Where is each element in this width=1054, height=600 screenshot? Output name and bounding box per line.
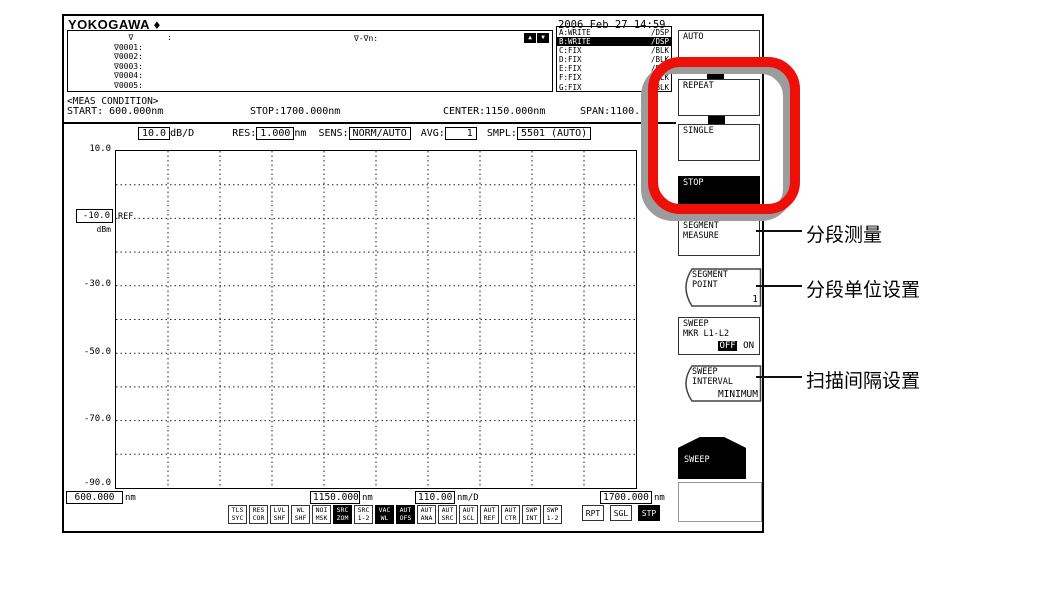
status-indicator-aut-ref: AUTREF [480, 505, 499, 524]
status-button-rpt: RPT [582, 505, 604, 521]
y-tick: -50.0 [69, 347, 111, 357]
status-indicator-src-zom: SRCZOM [333, 505, 352, 524]
status-button-row: RPTSGLSTP [582, 505, 660, 521]
grid [116, 151, 636, 488]
sweep-menu-header: SWEEP [678, 437, 746, 479]
res-value: 1.000 [256, 127, 294, 140]
meas-field: CENTER:1150.000nm [443, 106, 545, 117]
scroll-down-icon[interactable]: ▼ [537, 33, 549, 43]
trace-row: B:WRITE/DSP [557, 37, 671, 46]
smpl-value: 5501 (AUTO) [517, 127, 591, 140]
softkey-segment-point[interactable]: SEGMENTPOINT 1 [678, 268, 762, 307]
meas-fields: START: 600.000nmSTOP:1700.000nmCENTER:11… [64, 106, 676, 120]
status-indicator-lvl-shf: LVLSHF [270, 505, 289, 524]
callout-line [756, 285, 802, 287]
annotation-sweep-interval: 扫描间隔设置 [806, 366, 920, 393]
avg-value: 1 [445, 127, 477, 140]
status-indicator-wl-shf: WLSHF [291, 505, 310, 524]
status-indicator-aut-ana: AUTANA [417, 505, 436, 524]
status-button-stp: STP [638, 505, 660, 521]
softkey-sweep-marker[interactable]: SWEEPMKR L1-L2 OFF ON [678, 317, 760, 355]
marker-row: ∇0003: [114, 62, 172, 72]
marker-rows: ∇ :∇0001:∇0002:∇0003:∇0004:∇0005: [114, 33, 172, 91]
y-axis-unit: dBm [69, 225, 111, 234]
smpl-label: SMPL: [487, 128, 517, 139]
x-start: 600.000nm [66, 491, 136, 504]
status-indicator-aut-ctr: AUTCTR [501, 505, 520, 524]
res-label: RES: [232, 128, 256, 139]
status-indicator-swp-int: SWPINT [522, 505, 541, 524]
sens-label: SENS: [318, 128, 348, 139]
highlight-ring [648, 57, 800, 214]
settings-row: 10.0dB/D RES: 1.000nm SENS:NORM/AUTO AVG… [138, 127, 591, 140]
y-tick: 10.0 [69, 144, 111, 154]
marker-panel: ∇ :∇0001:∇0002:∇0003:∇0004:∇0005: ∇-∇n: … [67, 30, 553, 92]
meas-field: STOP:1700.000nm [250, 106, 340, 117]
y-ref-value: -10.0 [76, 209, 113, 223]
marker-row: ∇ : [114, 33, 172, 43]
y-tick: -30.0 [69, 279, 111, 289]
on-state: ON [742, 341, 755, 351]
page: { "header": { "brand": "YOKOGAWA", "bran… [0, 0, 1054, 600]
status-indicator-row: TLSSYCRESCORLVLSHFWLSHFNOIMSKSRCZOMSRC1-… [228, 505, 562, 524]
x-center: 1150.000nm [310, 491, 373, 504]
status-indicator-aut-ofs: AUTOFS [396, 505, 415, 524]
status-indicator-vac-wl: VACWL [375, 505, 394, 524]
trace-row: D:FIX/BLK [557, 55, 671, 64]
marker-row: ∇0004: [114, 71, 172, 81]
ref-level-label: REF [118, 212, 134, 222]
callout-line [756, 376, 802, 378]
status-indicator-res-cor: RESCOR [249, 505, 268, 524]
segment-point-value: 1 [752, 294, 758, 305]
marker-row: ∇0001: [114, 43, 172, 53]
callout-line [756, 230, 802, 232]
level-scale-unit: dB/D [170, 128, 194, 139]
sens-value: NORM/AUTO [349, 127, 411, 140]
spectrum-graph [115, 150, 637, 489]
status-button-sgl: SGL [610, 505, 632, 521]
scroll-up-icon[interactable]: ▲ [524, 33, 536, 43]
y-tick: -70.0 [69, 414, 111, 424]
avg-label: AVG: [421, 128, 445, 139]
meas-field: START: 600.000nm [67, 106, 163, 117]
marker-row: ∇0002: [114, 52, 172, 62]
softkey-segment-measure[interactable]: SEGMENTMEASURE [678, 219, 760, 256]
x-scale: 110.00nm/D [415, 491, 479, 504]
res-unit: nm [294, 128, 306, 139]
status-indicator-src-1-2: SRC1-2 [354, 505, 373, 524]
off-state: OFF [718, 341, 736, 351]
y-tick: -90.0 [69, 478, 111, 488]
status-indicator-swp-1-2: SWP1-2 [543, 505, 562, 524]
marker-row: ∇0005: [114, 81, 172, 91]
status-indicator-tls-syc: TLSSYC [228, 505, 247, 524]
annotation-segment-measure: 分段测量 [806, 220, 882, 247]
separator-line [64, 122, 676, 124]
softkey-empty [678, 482, 762, 522]
trace-row: C:FIX/BLK [557, 46, 671, 55]
status-indicator-noi-msk: NOIMSK [312, 505, 331, 524]
softkey-sweep-interval[interactable]: SWEEPINTERVAL MINIMUM [678, 365, 762, 402]
status-indicator-aut-scl: AUTSCL [459, 505, 478, 524]
marker-scroll-buttons: ▲ ▼ [524, 33, 549, 43]
annotation-segment-point: 分段单位设置 [806, 275, 920, 302]
marker-delta-label: ∇-∇n: [354, 34, 378, 43]
trace-row: A:WRITE/DSP [557, 28, 671, 37]
x-stop: 1700.000nm [600, 491, 665, 504]
level-scale-value: 10.0 [138, 127, 170, 140]
status-indicator-aut-src: AUTSRC [438, 505, 457, 524]
sweep-interval-value: MINIMUM [718, 389, 758, 400]
